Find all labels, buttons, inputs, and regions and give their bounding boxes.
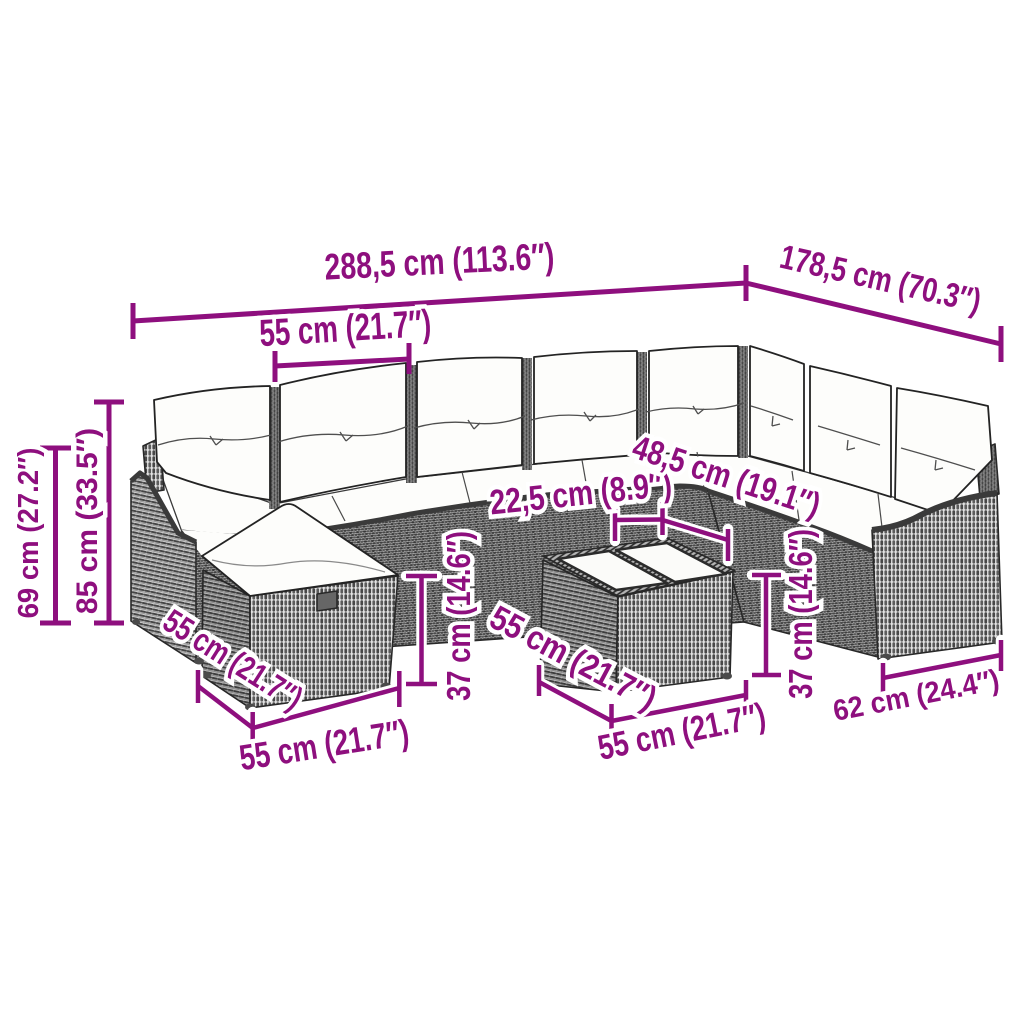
svg-text:178,5 cm (70.3″): 178,5 cm (70.3″) [776, 237, 984, 321]
svg-text:37 cm (14.6″): 37 cm (14.6″) [784, 529, 820, 699]
svg-text:69 cm (27.2″): 69 cm (27.2″) [11, 448, 44, 619]
svg-text:288,5 cm (113.6″): 288,5 cm (113.6″) [324, 235, 556, 288]
svg-text:37 cm (14.6″): 37 cm (14.6″) [442, 531, 478, 701]
svg-text:55 cm (21.7″): 55 cm (21.7″) [258, 303, 432, 356]
svg-text:85 cm (33.5″): 85 cm (33.5″) [71, 428, 104, 614]
